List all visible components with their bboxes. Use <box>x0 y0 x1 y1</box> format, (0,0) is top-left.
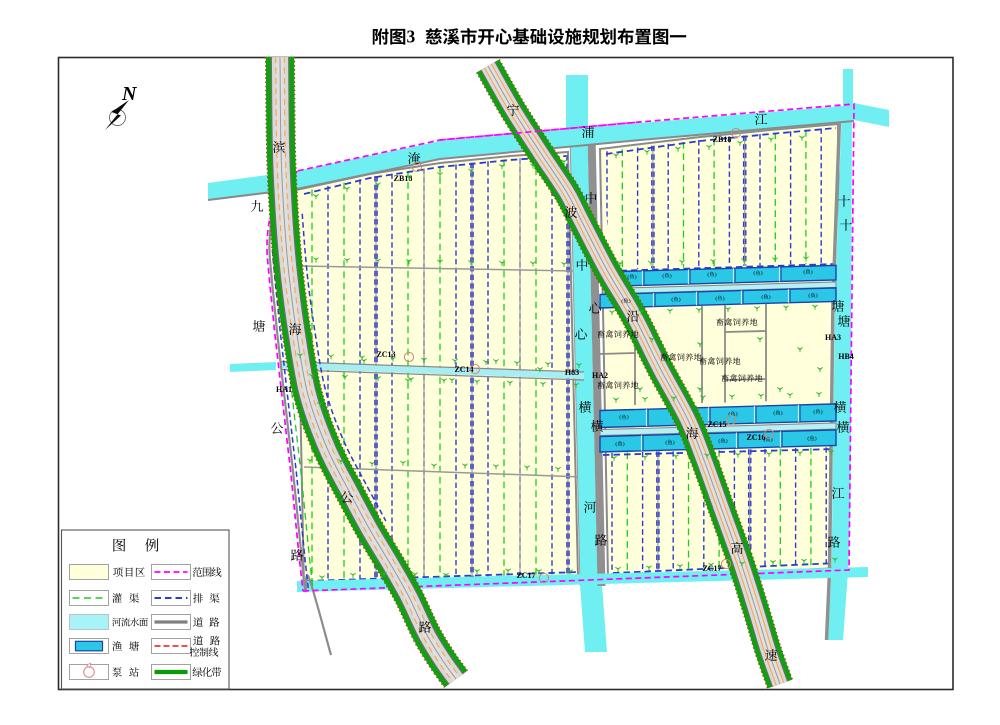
svg-text:N: N <box>121 83 138 105</box>
svg-text:3: 3 <box>407 27 416 47</box>
svg-text:HA3: HA3 <box>825 333 841 342</box>
svg-text:ZB18: ZB18 <box>394 174 413 183</box>
svg-text:HA2: HA2 <box>592 371 608 380</box>
svg-text:ZC17: ZC17 <box>516 571 535 580</box>
svg-text:ZC17: ZC17 <box>702 564 721 573</box>
svg-text:ZC15: ZC15 <box>707 420 726 429</box>
svg-text:HB4: HB4 <box>838 352 854 361</box>
svg-text:H83: H83 <box>565 368 579 377</box>
svg-text:HA1: HA1 <box>276 385 292 394</box>
svg-text:ZB18: ZB18 <box>713 135 732 144</box>
